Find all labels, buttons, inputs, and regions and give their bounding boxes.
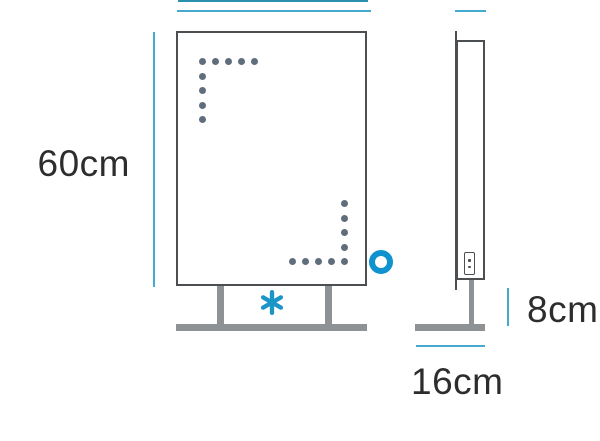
dimension-diagram: 60cm 8cm 16cm: [0, 0, 600, 441]
front-right-leg: [325, 286, 332, 326]
side-base-bar: [415, 324, 485, 331]
led-dot: [199, 102, 206, 109]
switch-dot: [468, 259, 471, 262]
led-dot: [199, 58, 206, 65]
asterisk-marker-icon: [260, 290, 284, 315]
depth-dimension-line: [416, 345, 485, 347]
led-dot: [199, 87, 206, 94]
height-dimension-line: [153, 32, 155, 287]
led-dot: [199, 73, 206, 80]
led-dot: [225, 58, 232, 65]
led-dot: [341, 215, 348, 222]
front-base-bar: [176, 324, 367, 331]
top-crop-dimension-line: [178, 0, 368, 2]
led-dot: [341, 244, 348, 251]
led-dot: [341, 258, 348, 265]
depth-label: 16cm: [411, 363, 503, 400]
height-label: 60cm: [30, 145, 130, 182]
led-dot: [328, 258, 335, 265]
circle-marker-icon: [369, 250, 393, 274]
led-dot: [315, 258, 322, 265]
width-dimension-line: [177, 10, 371, 12]
switch-dot: [468, 266, 471, 269]
side-view-panel-line: [455, 31, 457, 290]
led-dot: [341, 200, 348, 207]
power-switch-icon: [464, 252, 475, 275]
led-dot: [212, 58, 219, 65]
led-dot: [302, 258, 309, 265]
led-dot: [289, 258, 296, 265]
front-view-outline: [176, 31, 367, 286]
led-dot: [238, 58, 245, 65]
leg-height-dimension-line: [507, 288, 509, 326]
led-dot: [199, 116, 206, 123]
led-dot: [341, 229, 348, 236]
side-leg: [469, 280, 474, 325]
side-width-dimension-line: [455, 10, 486, 12]
front-left-leg: [217, 286, 224, 326]
leg-height-label: 8cm: [527, 291, 598, 328]
side-view-body-outline: [456, 40, 485, 280]
led-dot: [251, 58, 258, 65]
